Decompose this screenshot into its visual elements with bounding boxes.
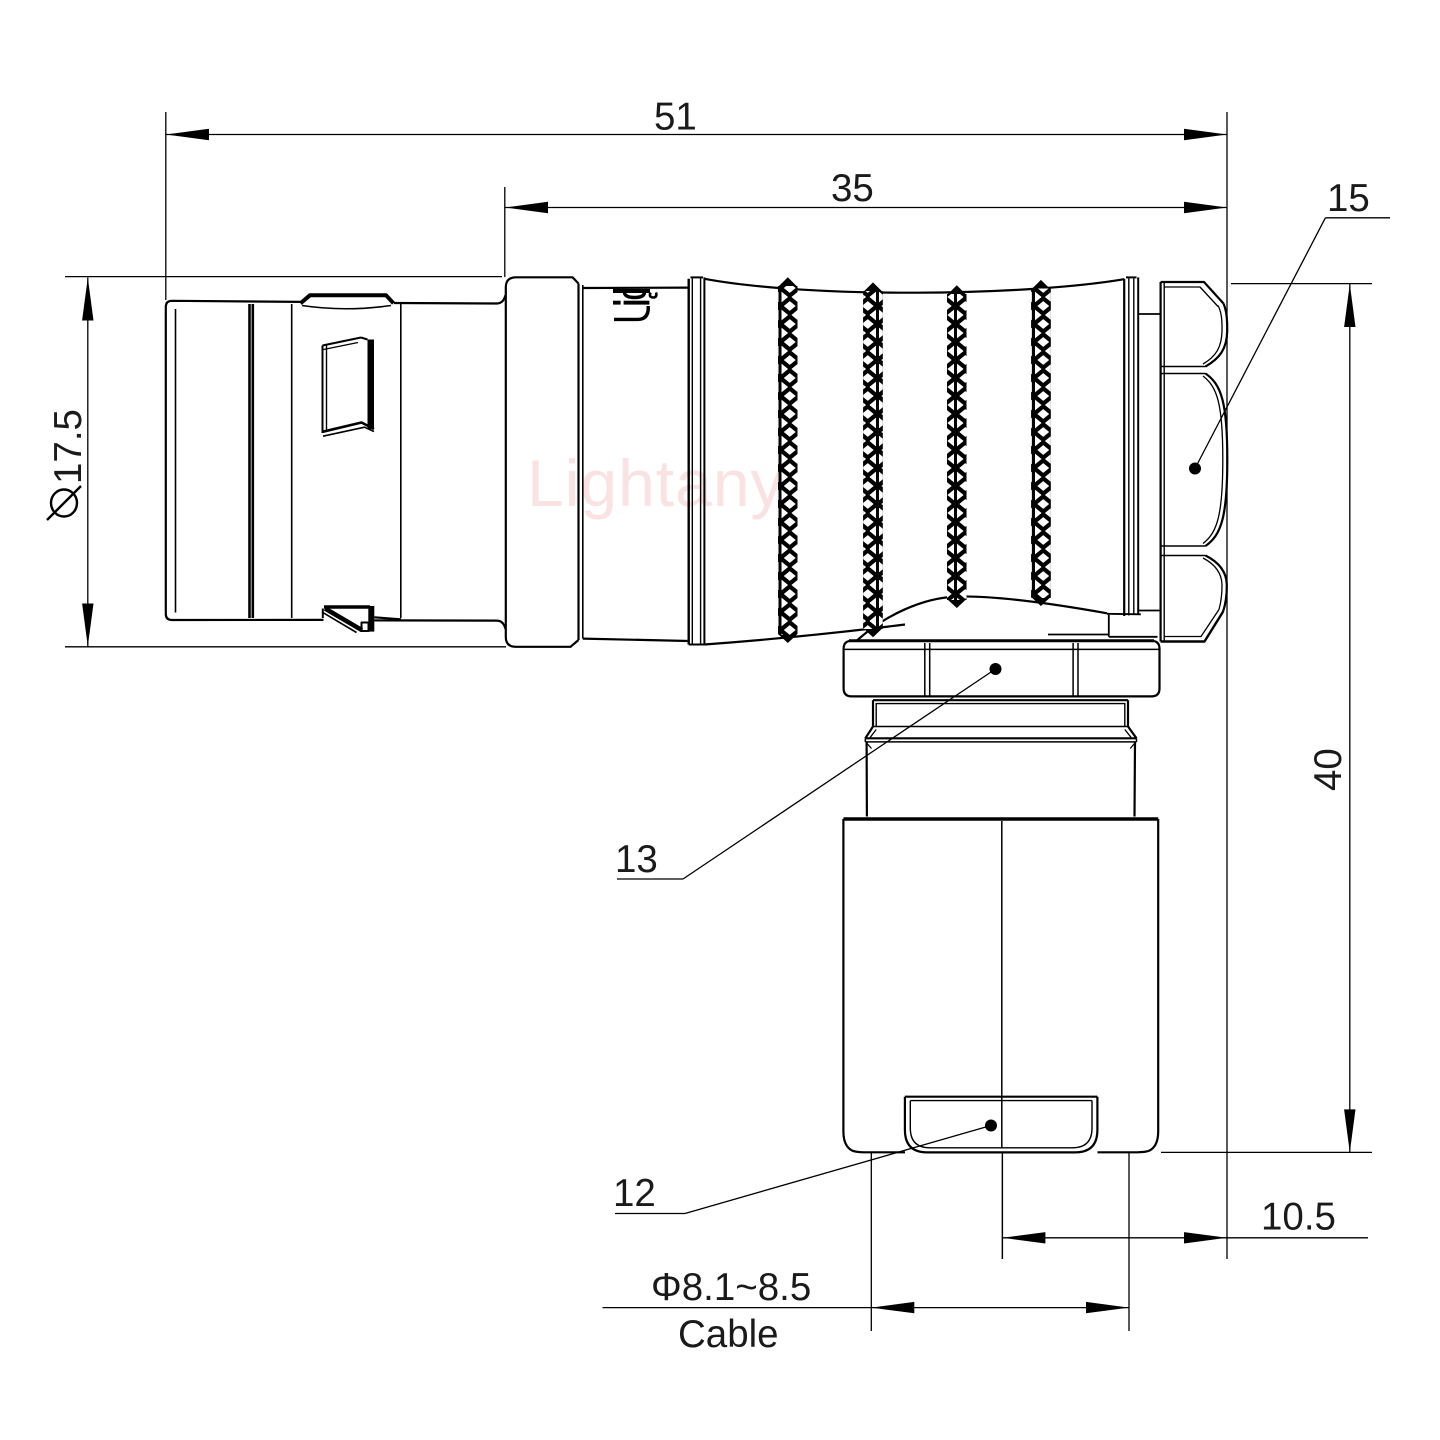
svg-text:10.5: 10.5 xyxy=(1261,1196,1336,1239)
svg-text:Φ8.1~8.5: Φ8.1~8.5 xyxy=(651,1266,811,1309)
svg-text:17.5: 17.5 xyxy=(47,409,90,484)
svg-text:Lightany: Lightany xyxy=(527,446,785,520)
svg-text:51: 51 xyxy=(654,96,697,139)
svg-text:Cable: Cable xyxy=(678,1313,779,1356)
svg-text:13: 13 xyxy=(615,838,658,881)
svg-text:15: 15 xyxy=(1327,177,1370,220)
svg-text:40: 40 xyxy=(1307,748,1350,791)
svg-text:35: 35 xyxy=(831,167,874,210)
svg-text:12: 12 xyxy=(613,1172,656,1215)
